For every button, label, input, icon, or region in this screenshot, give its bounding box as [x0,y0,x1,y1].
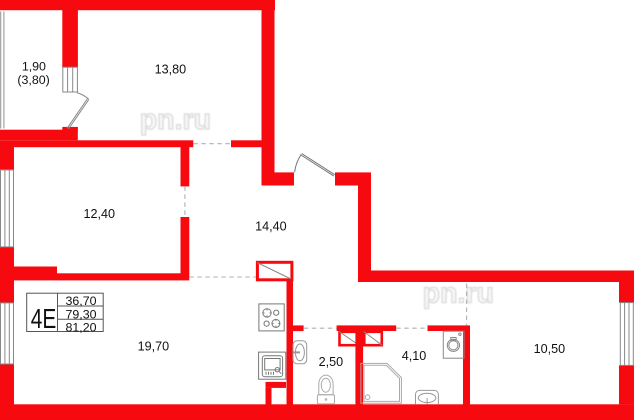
svg-text:13,80: 13,80 [155,63,187,77]
svg-text:4Е: 4Е [31,303,57,334]
svg-text:12,40: 12,40 [84,207,116,221]
svg-text:pn.ru: pn.ru [140,104,211,136]
svg-text:79,30: 79,30 [65,307,96,321]
svg-text:1,90: 1,90 [22,59,46,73]
svg-text:19,70: 19,70 [138,340,170,354]
svg-text:10,50: 10,50 [534,342,566,356]
svg-text:4,10: 4,10 [402,349,427,363]
svg-text:36,70: 36,70 [65,294,96,308]
svg-text:2,50: 2,50 [319,355,344,369]
svg-text:pn.ru: pn.ru [423,278,494,310]
svg-text:14,40: 14,40 [255,219,287,233]
svg-text:(3,80): (3,80) [17,73,49,87]
svg-text:81,20: 81,20 [65,321,96,335]
